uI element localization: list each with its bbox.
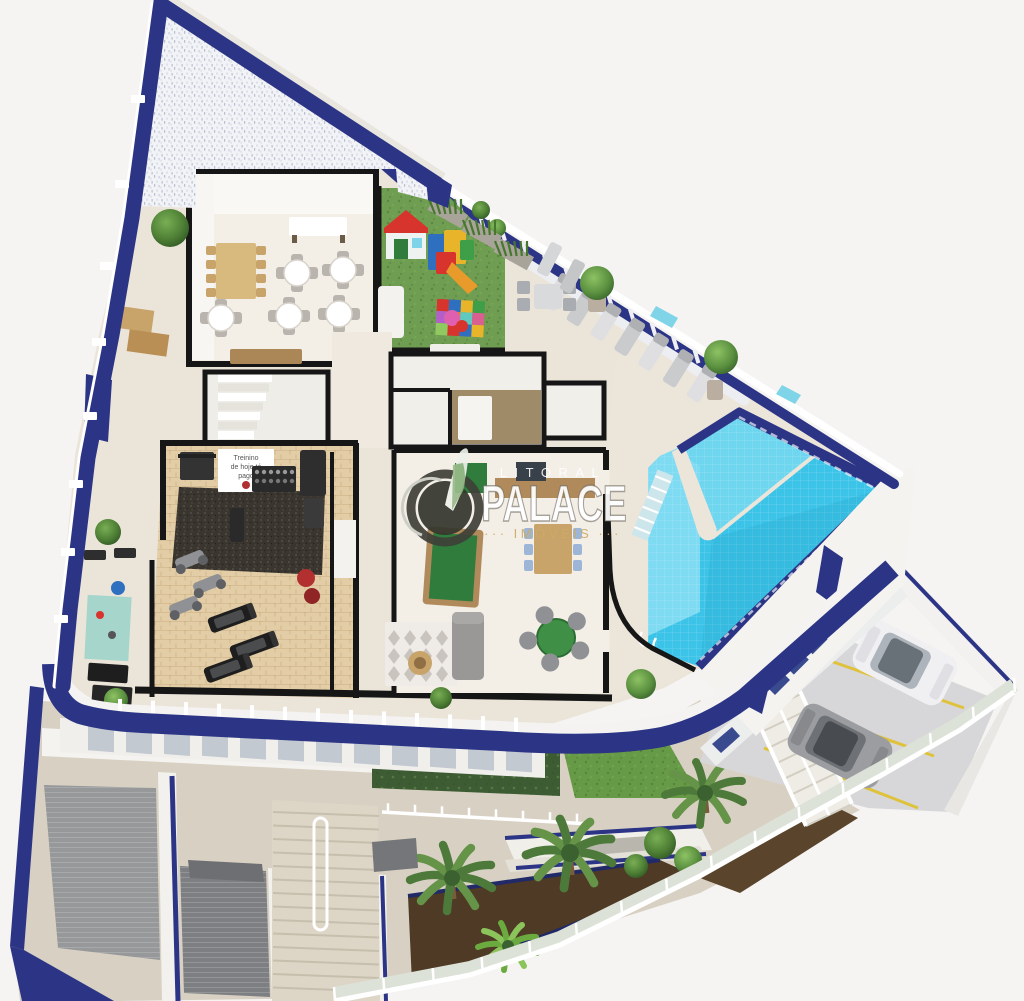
svg-text:··· IMÓVEIS ···: ··· IMÓVEIS ··· [484, 526, 622, 541]
svg-text:Treinino: Treinino [233, 455, 258, 462]
svg-text:PALACE: PALACE [481, 476, 627, 533]
svg-text:pago: pago [238, 473, 254, 480]
